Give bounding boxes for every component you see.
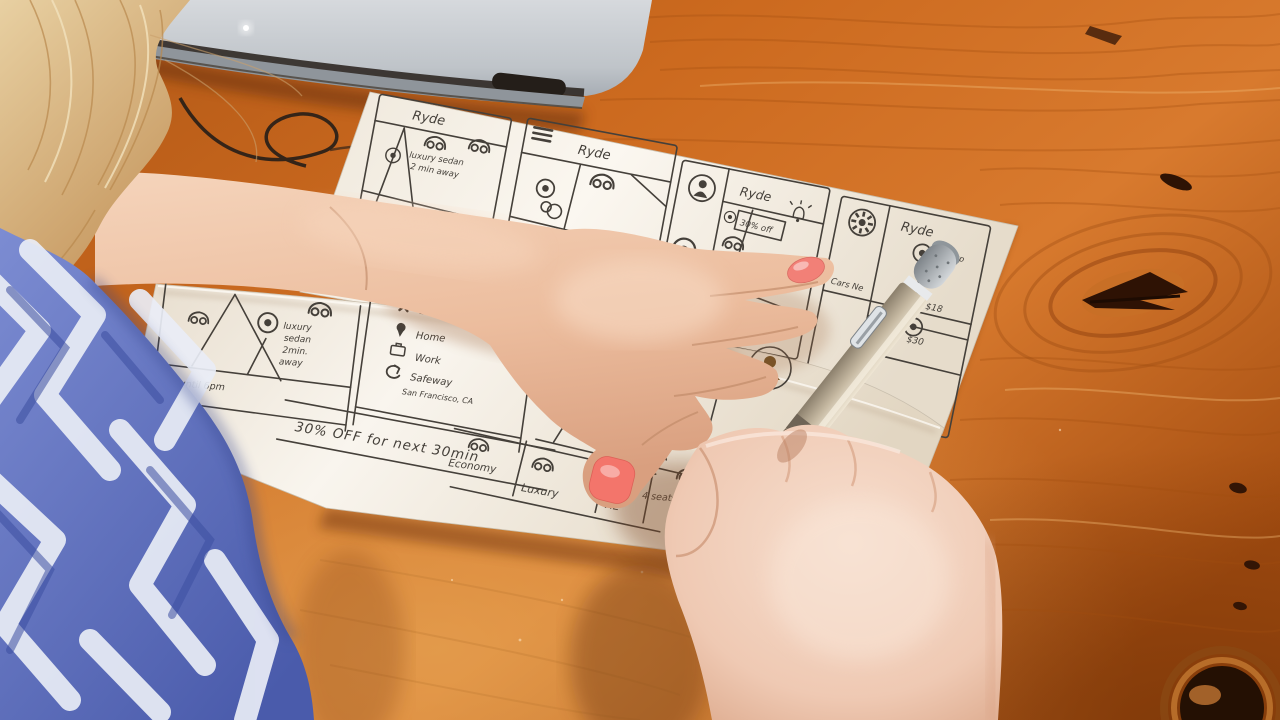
frame5-note-4: away (279, 357, 304, 369)
sleep-led (243, 25, 249, 31)
frame5-note-2: sedan (284, 334, 312, 346)
frame5-note-3: 2min. (282, 346, 308, 358)
frame5-note-1: luxury (283, 322, 313, 334)
photo-scene: Ryde luxury sedan 2 min away Ryde (0, 0, 1280, 720)
